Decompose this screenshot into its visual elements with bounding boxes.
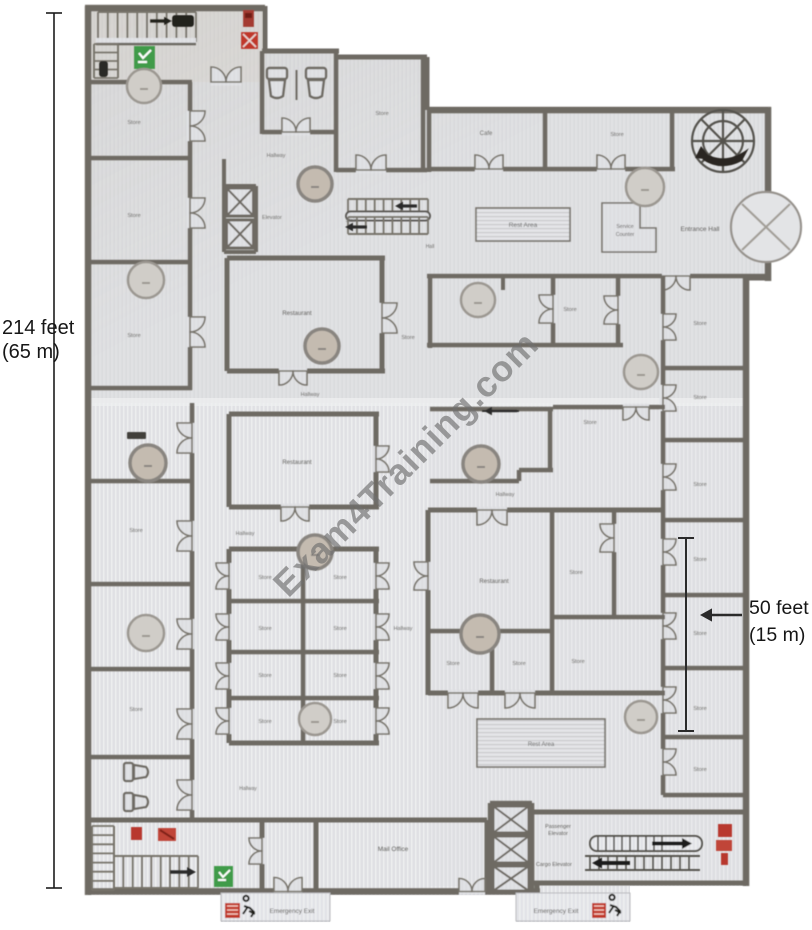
svg-text:Store: Store (569, 570, 582, 576)
svg-text:Hallway: Hallway (301, 392, 320, 398)
svg-text:Store: Store (127, 333, 140, 339)
svg-text:Store: Store (563, 307, 576, 313)
svg-text:Store: Store (401, 335, 414, 341)
svg-text:Cargo Elevator: Cargo Elevator (536, 862, 572, 868)
svg-text:Store: Store (258, 673, 271, 679)
svg-text:Store: Store (693, 557, 706, 563)
svg-text:Hallway: Hallway (496, 492, 515, 498)
svg-text:Store: Store (333, 626, 346, 632)
svg-text:Store: Store (127, 213, 140, 219)
svg-text:Service: Service (616, 224, 633, 230)
svg-text:Store: Store (610, 132, 623, 138)
svg-text:Restaurant: Restaurant (479, 579, 509, 585)
svg-text:Store: Store (571, 659, 584, 665)
svg-text:Store: Store (446, 661, 459, 667)
svg-text:Store: Store (129, 528, 142, 534)
svg-text:Counter: Counter (616, 232, 635, 238)
svg-text:Stairs: Stairs (346, 218, 359, 224)
svg-text:Elevator: Elevator (262, 215, 282, 221)
svg-text:Store: Store (127, 120, 140, 126)
svg-text:Cafe: Cafe (480, 131, 493, 137)
svg-text:Restaurant: Restaurant (282, 311, 312, 317)
svg-text:Hallway: Hallway (267, 153, 286, 159)
svg-text:Store: Store (333, 673, 346, 679)
svg-text:Rest Area: Rest Area (528, 742, 555, 748)
svg-text:Store: Store (693, 706, 706, 712)
svg-text:Hallway: Hallway (239, 786, 257, 792)
svg-text:Hall: Hall (426, 244, 435, 250)
svg-text:Passenger: Passenger (545, 824, 571, 830)
svg-text:Rest Area: Rest Area (509, 222, 538, 229)
svg-text:Store: Store (512, 661, 525, 667)
svg-text:214 feet: 214 feet (2, 317, 75, 339)
svg-text:Emergency Exit: Emergency Exit (270, 908, 315, 915)
svg-text:Emergency Exit: Emergency Exit (534, 908, 579, 915)
svg-text:Hallway: Hallway (394, 626, 413, 632)
svg-text:Store: Store (375, 111, 388, 117)
svg-text:Store: Store (693, 482, 706, 488)
svg-text:Store: Store (693, 767, 706, 773)
svg-text:Elevator: Elevator (548, 831, 568, 837)
svg-text:Store: Store (258, 626, 271, 632)
svg-text:Entrance Hall: Entrance Hall (680, 226, 720, 233)
svg-text:Store: Store (583, 420, 596, 426)
svg-text:(65 m): (65 m) (2, 341, 60, 363)
svg-text:Store: Store (333, 719, 346, 725)
svg-text:Store: Store (693, 395, 706, 401)
svg-text:Store: Store (693, 631, 706, 637)
svg-text:Store: Store (129, 707, 142, 713)
svg-text:Hallway: Hallway (236, 531, 255, 537)
svg-text:Mail Office: Mail Office (378, 846, 409, 853)
svg-text:Store: Store (333, 575, 346, 581)
svg-text:Store: Store (693, 321, 706, 327)
svg-text:Restaurant: Restaurant (282, 460, 312, 466)
svg-text:(15 m): (15 m) (749, 624, 805, 646)
svg-text:50 feet: 50 feet (749, 597, 809, 619)
svg-text:Store: Store (258, 719, 271, 725)
